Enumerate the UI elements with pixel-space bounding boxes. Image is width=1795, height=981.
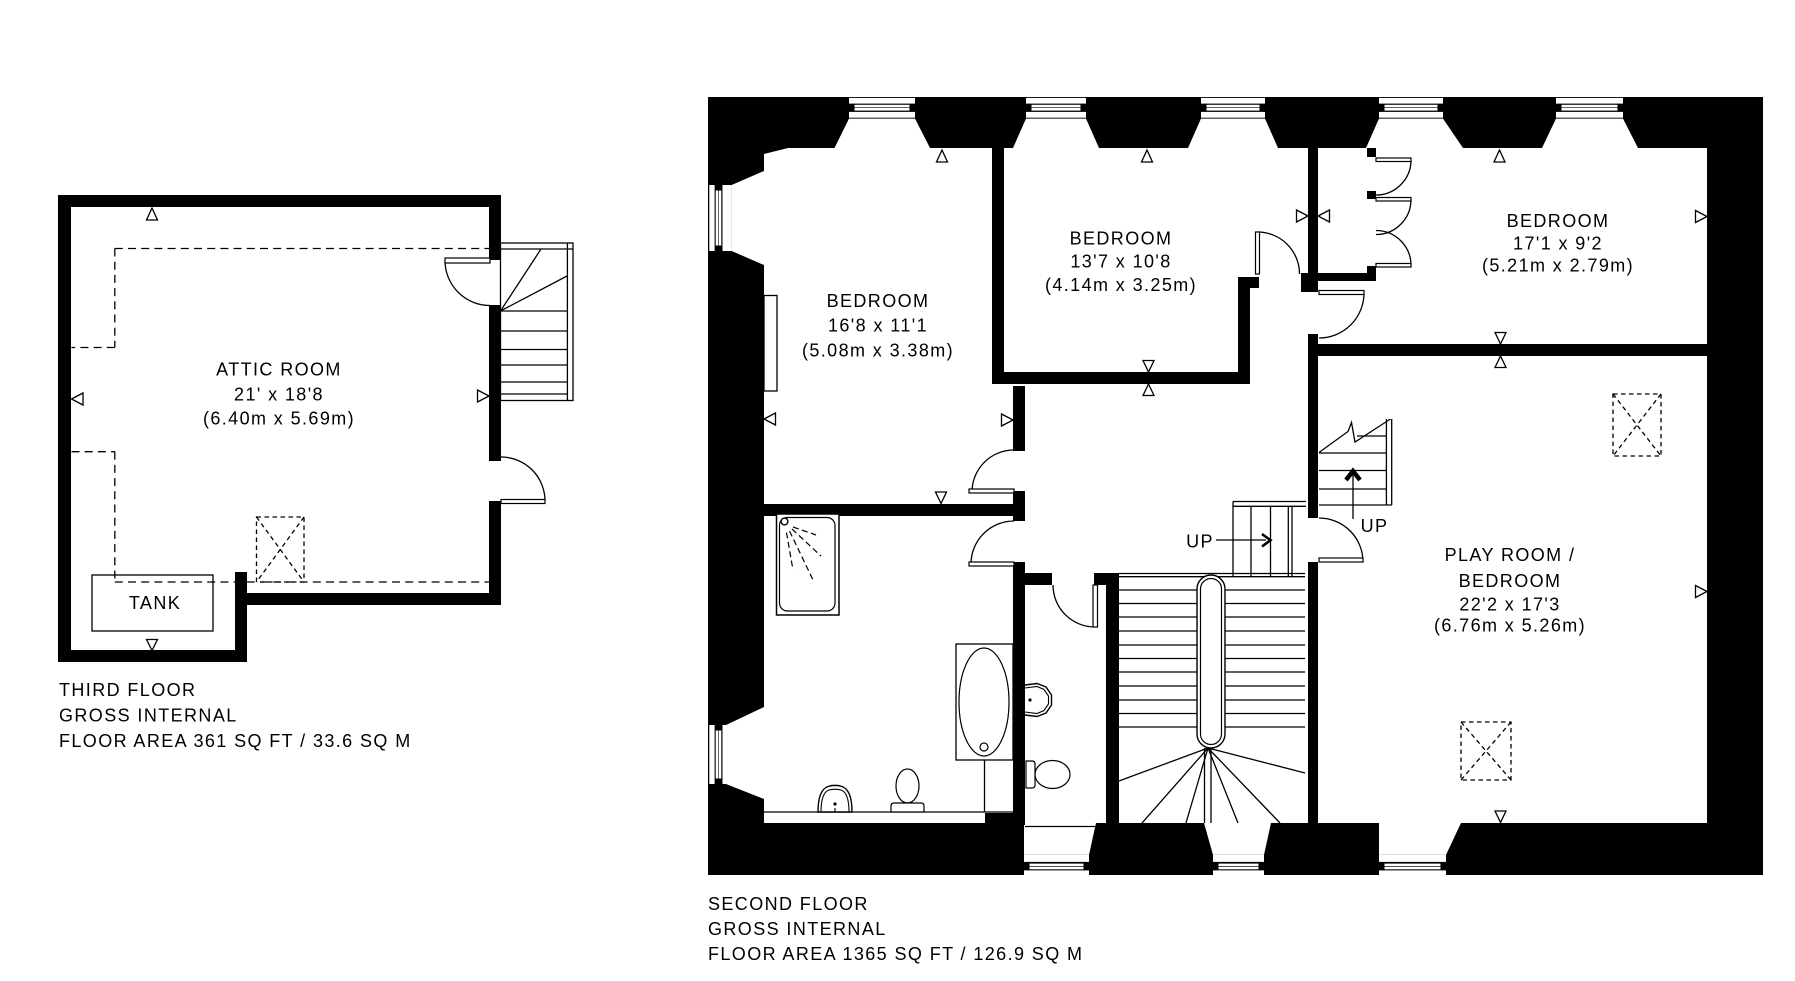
- svg-text:GROSS INTERNAL: GROSS INTERNAL: [59, 706, 238, 726]
- svg-text:SECOND FLOOR: SECOND FLOOR: [708, 894, 869, 914]
- svg-text:(5.08m x 3.38m): (5.08m x 3.38m): [802, 341, 954, 361]
- svg-text:(5.21m x 2.79m): (5.21m x 2.79m): [1482, 256, 1634, 276]
- svg-text:17'1 x 9'2: 17'1 x 9'2: [1513, 234, 1603, 254]
- svg-text:(6.76m x 5.26m): (6.76m x 5.26m): [1434, 616, 1586, 636]
- svg-text:22'2 x 17'3: 22'2 x 17'3: [1459, 595, 1560, 615]
- svg-text:BEDROOM: BEDROOM: [1507, 211, 1610, 231]
- svg-text:BEDROOM: BEDROOM: [827, 291, 930, 311]
- svg-text:TANK: TANK: [129, 593, 181, 613]
- svg-text:FLOOR AREA 1365 SQ FT / 126.9: FLOOR AREA 1365 SQ FT / 126.9 SQ M: [708, 944, 1083, 964]
- svg-text:UP: UP: [1186, 532, 1214, 552]
- svg-text:GROSS INTERNAL: GROSS INTERNAL: [708, 919, 887, 939]
- svg-text:21' x 18'8: 21' x 18'8: [234, 384, 324, 404]
- svg-text:UP: UP: [1361, 516, 1389, 536]
- svg-text:(6.40m x 5.69m): (6.40m x 5.69m): [203, 409, 355, 429]
- svg-text:(4.14m x 3.25m): (4.14m x 3.25m): [1045, 275, 1197, 295]
- svg-text:BEDROOM: BEDROOM: [1459, 571, 1562, 591]
- svg-text:FLOOR AREA 361 SQ FT / 33.6 SQ: FLOOR AREA 361 SQ FT / 33.6 SQ M: [59, 731, 412, 751]
- svg-text:16'8 x 11'1: 16'8 x 11'1: [828, 316, 928, 336]
- svg-text:ATTIC ROOM: ATTIC ROOM: [216, 360, 342, 380]
- svg-text:THIRD FLOOR: THIRD FLOOR: [59, 680, 196, 700]
- svg-text:13'7 x 10'8: 13'7 x 10'8: [1070, 252, 1171, 272]
- svg-text:BEDROOM: BEDROOM: [1070, 229, 1173, 249]
- svg-text:PLAY ROOM /: PLAY ROOM /: [1445, 545, 1576, 565]
